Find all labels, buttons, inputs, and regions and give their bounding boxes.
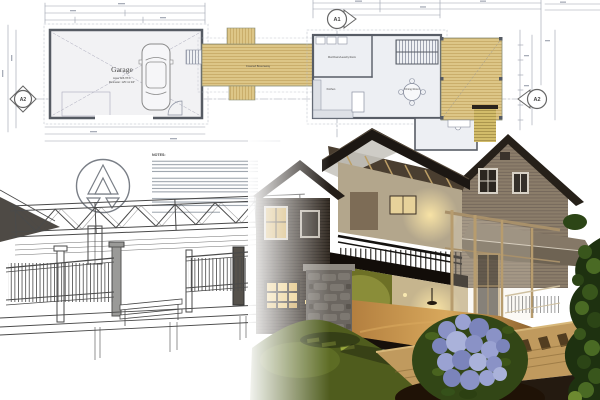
notes-heading: NOTES: xyxy=(152,153,166,157)
gable-window xyxy=(512,172,529,194)
garage-area-text: Area: 926.78 ft² xyxy=(113,76,131,80)
sketch-railing-right xyxy=(186,252,248,292)
section-marker-a1: A1 xyxy=(328,10,357,29)
mudroom-label: Mud Room/Laundry Room xyxy=(328,56,356,59)
marker-a1-label: A1 xyxy=(333,17,340,23)
compass-logo-icon xyxy=(77,160,130,213)
sketch-bench xyxy=(120,299,182,326)
section-marker-a2-right: A2 xyxy=(518,90,547,109)
sketch-railing-left xyxy=(6,258,114,305)
architectural-visualization: Garage Area: 926.78 ft² Perimeter: 125'-… xyxy=(0,0,600,400)
dining-room-label: Dining Room xyxy=(405,87,420,91)
notes-paragraph xyxy=(152,160,258,173)
scene-svg: Garage Area: 926.78 ft² Perimeter: 125'-… xyxy=(0,0,600,400)
kitchen-label: Kitchen xyxy=(327,87,336,91)
breezeway-label: Covered Breezeway xyxy=(246,64,271,68)
glazed-door xyxy=(477,254,499,320)
garage-perimeter-text: Perimeter: 125'-11 3/4" xyxy=(109,80,135,84)
marker-a2-right-label: A2 xyxy=(533,97,540,103)
breezeway-plan: Covered Breezeway xyxy=(198,28,316,100)
car-top-view xyxy=(139,44,173,110)
marker-a2-left-label: A2 xyxy=(20,97,27,103)
section-marker-a2-left: A2 xyxy=(10,86,36,112)
notes-paragraph xyxy=(152,210,220,213)
gable-window xyxy=(478,168,498,194)
notes-paragraph xyxy=(152,177,258,194)
garage-plan: Garage Area: 926.78 ft² Perimeter: 125'-… xyxy=(44,24,208,124)
render-left-fade xyxy=(248,120,330,400)
chimney-slats xyxy=(472,105,498,142)
notes-block: NOTES: xyxy=(152,153,258,213)
garage-label: Garage xyxy=(111,65,133,74)
